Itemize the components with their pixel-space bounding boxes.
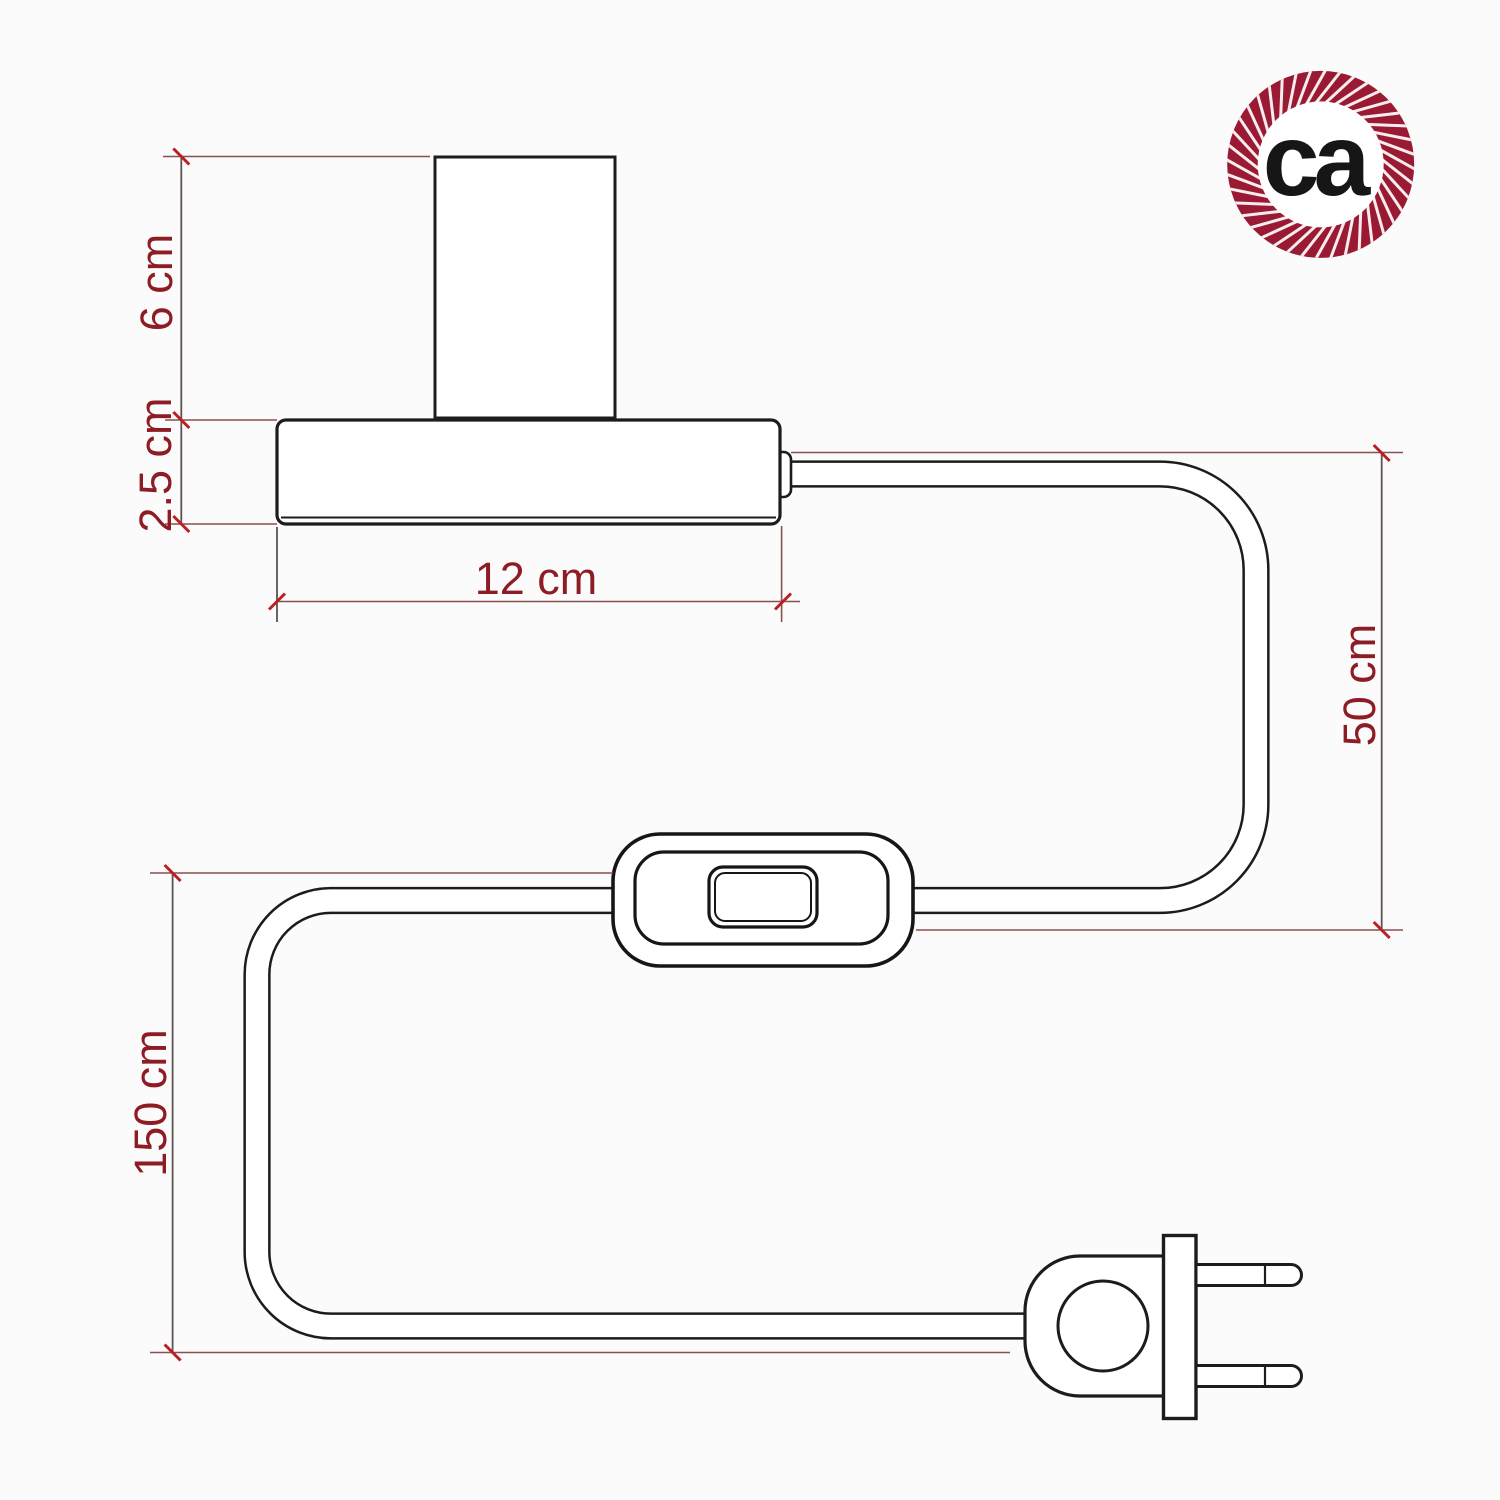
svg-text:150 cm: 150 cm — [125, 1029, 176, 1177]
svg-text:12 cm: 12 cm — [475, 553, 598, 604]
svg-text:2.5 cm: 2.5 cm — [130, 397, 181, 532]
svg-text:50 cm: 50 cm — [1334, 624, 1385, 747]
svg-text:ca: ca — [1263, 103, 1372, 217]
svg-text:6 cm: 6 cm — [131, 234, 182, 332]
